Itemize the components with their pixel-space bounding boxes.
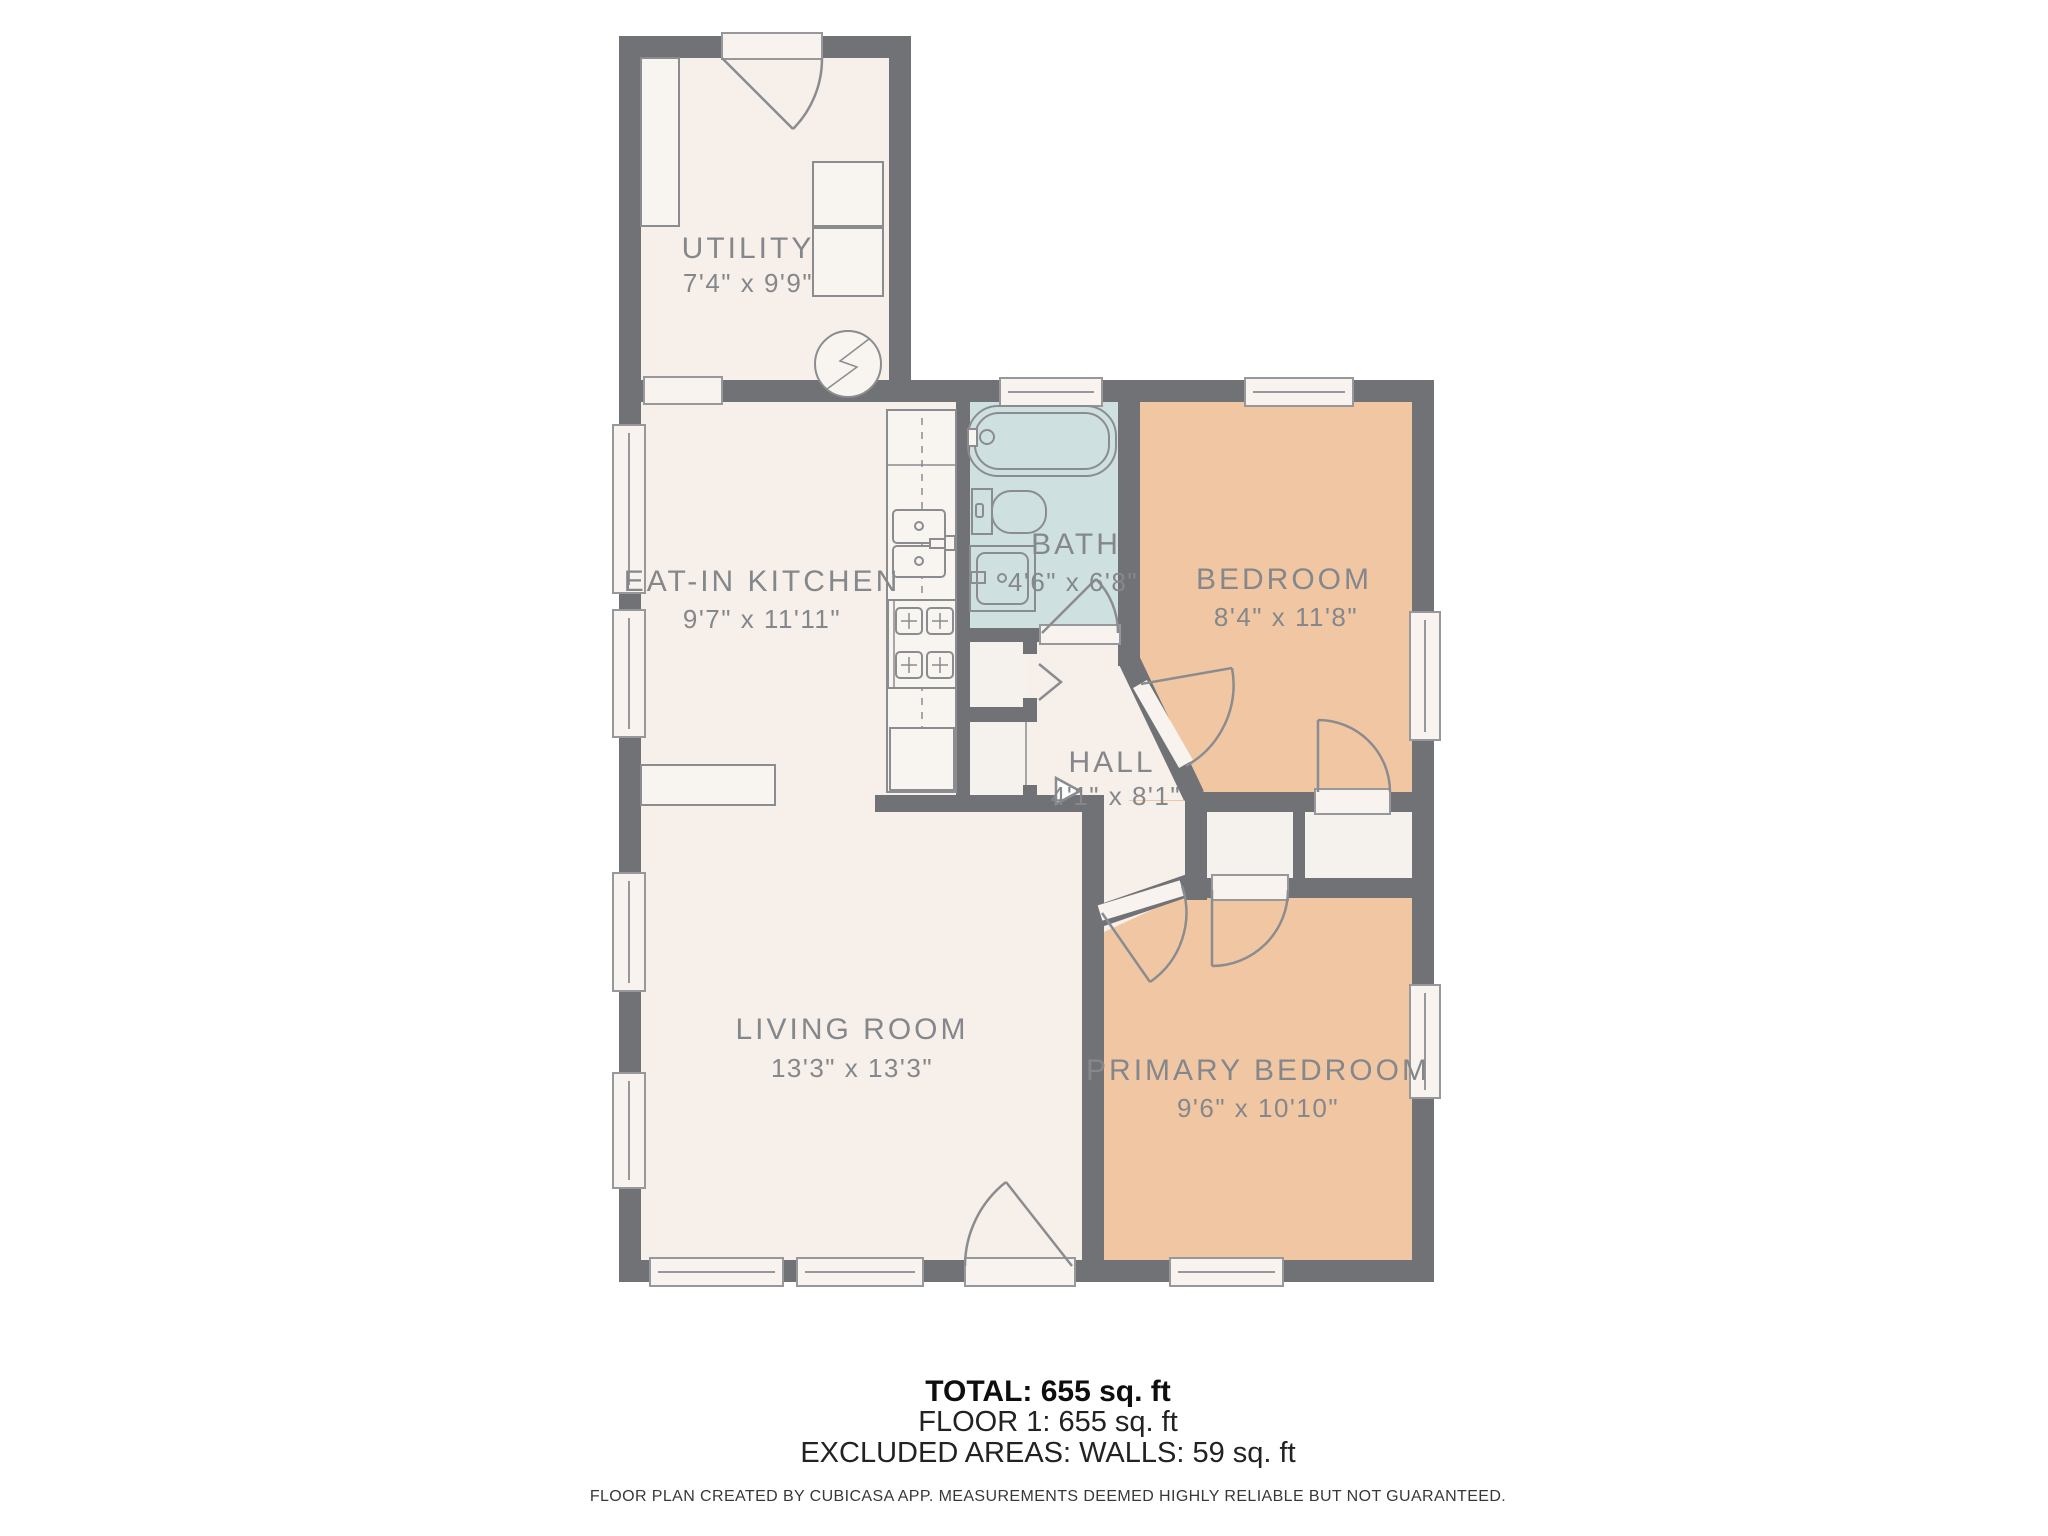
- wall-living-primary: [1082, 795, 1104, 1260]
- dryer: [813, 228, 883, 296]
- total-area-text: TOTAL: 655 sq. ft: [24, 1376, 2048, 1407]
- bedroom-label: BEDROOM: [1196, 563, 1372, 596]
- primary-bedroom-label: PRIMARY BEDROOM: [1086, 1054, 1430, 1087]
- utility-dims: 7'4" x 9'9": [683, 268, 813, 298]
- area-summary: TOTAL: 655 sq. ft FLOOR 1: 655 sq. ft EX…: [24, 1376, 2048, 1469]
- kitchen-sink-basin-bottom: [893, 546, 945, 577]
- wall-kitchen-bath: [956, 402, 970, 808]
- washer: [813, 162, 883, 226]
- wall-bath-bedroom: [1118, 402, 1140, 666]
- bedroom-closet-threshold: [1315, 789, 1390, 814]
- bath-floor: [956, 395, 1126, 635]
- room-floors: [630, 47, 1423, 1271]
- wall-utility-right: [889, 36, 911, 402]
- living-room-dims: 13'3" x 13'3": [771, 1053, 933, 1083]
- utility-cabinet: [641, 58, 679, 226]
- wall-right: [1412, 380, 1434, 1282]
- kitchen-label: EAT-IN KITCHEN: [624, 565, 900, 598]
- primary-bedroom-dims: 9'6" x 10'10": [1177, 1093, 1339, 1123]
- bedroom-dims: 8'4" x 11'8": [1214, 602, 1358, 632]
- hall-dims: 4'1" x 8'1": [1051, 781, 1181, 811]
- bath-label: BATH: [1031, 528, 1121, 561]
- utility-kitchen-threshold: [644, 377, 722, 404]
- wall-bedroom-bottom: [1185, 792, 1434, 812]
- excluded-area-text: EXCLUDED AREAS: WALLS: 59 sq. ft: [24, 1438, 2048, 1469]
- kitchen-cabinet: [890, 728, 954, 790]
- disclaimer-text: FLOOR PLAN CREATED BY CUBICASA APP. MEAS…: [24, 1488, 2048, 1506]
- floor1-area-text: FLOOR 1: 655 sq. ft: [24, 1407, 2048, 1438]
- living-room-label: LIVING ROOM: [735, 1013, 968, 1046]
- floor-plan: UTILITY 7'4" x 9'9" EAT-IN KITCHEN 9'7" …: [0, 0, 2048, 1536]
- front-door-threshold: [965, 1258, 1075, 1286]
- primary-closet-threshold: [1212, 875, 1288, 900]
- hall-label: HALL: [1068, 746, 1155, 779]
- tub-faucet-icon: [968, 429, 977, 446]
- kitchen-peninsula-counter: [641, 765, 775, 805]
- utility-label: UTILITY: [682, 232, 815, 265]
- wall-hall-closet-right-a: [1023, 632, 1037, 654]
- bath-door-threshold: [1040, 625, 1120, 644]
- utility-entry-threshold: [722, 33, 822, 59]
- bath-dims: 4'6" x 6'8": [1008, 567, 1138, 597]
- kitchen-dims: 9'7" x 11'11": [683, 604, 841, 634]
- kitchen-faucet-icon: [945, 536, 955, 550]
- wall-closet-divider: [1293, 812, 1305, 880]
- wall-hall-closet-divider: [956, 707, 1037, 722]
